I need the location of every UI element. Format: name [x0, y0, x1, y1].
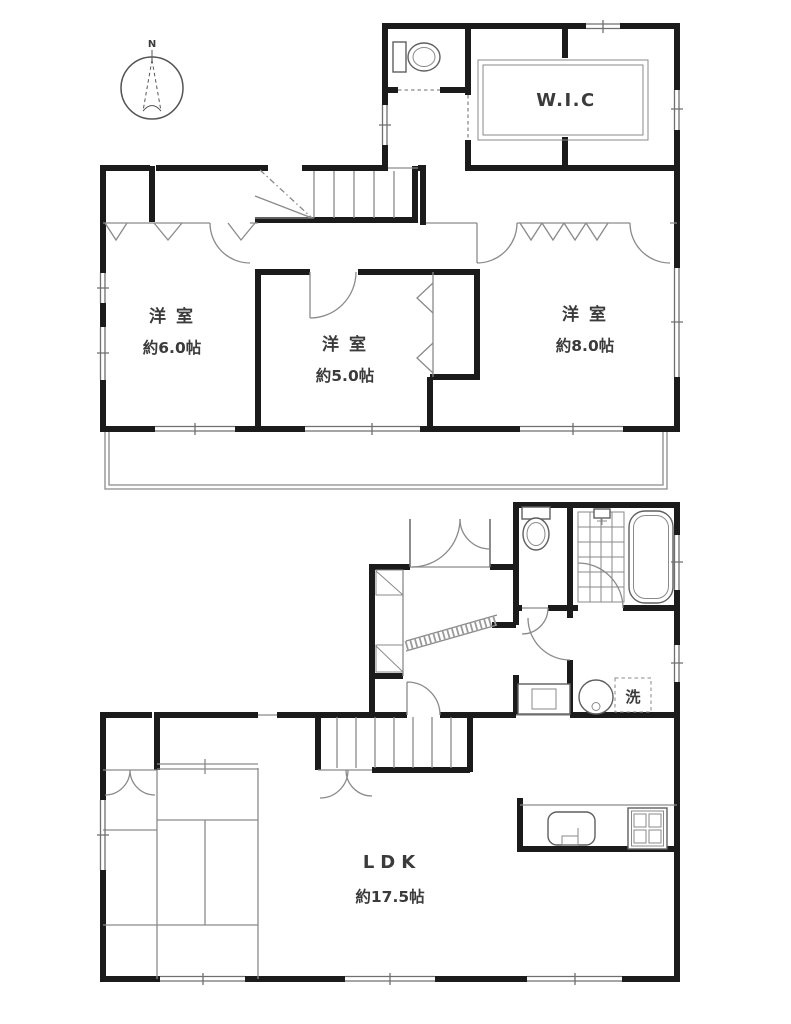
room-center-size: 約5.0帖 [316, 366, 375, 385]
room-west-name: 洋 室 [149, 306, 195, 327]
exterior-walls-1f [100, 505, 680, 982]
staircase-1f [320, 717, 451, 798]
entry-door-child-arc [460, 519, 490, 549]
toilet-2f-icon [393, 42, 440, 72]
window-right-washroom [671, 645, 683, 682]
window-top-wic [586, 20, 620, 33]
closet-folding-doors-west-2f [105, 223, 255, 240]
shoe-cabinet-icon [376, 570, 403, 676]
laundry-label: 洗 [625, 688, 640, 706]
genkan-step-hatch-band [406, 620, 497, 646]
window-left-lower [97, 327, 109, 380]
windows-2f [97, 20, 683, 435]
window-bottom-east [520, 423, 623, 435]
door-arc-room-center-2f [310, 272, 356, 318]
door-arc-room-east-right-2f [630, 223, 670, 263]
floor-2f-plan: W.I.C 洋 室 約6.0帖 洋 室 約5.0帖 洋 室 約8.0帖 [97, 20, 683, 489]
window-bottom-west [155, 423, 235, 435]
shower-faucet-spout [597, 518, 607, 525]
room-east-name: 洋 室 [562, 304, 608, 325]
ldk-size: 約17.5帖 [355, 887, 425, 906]
stair-treads-1f [337, 717, 451, 768]
shower-faucet-body [594, 509, 610, 518]
compass-north-label: N [148, 39, 156, 50]
tatami-room [103, 759, 258, 925]
washer-pan-icon [579, 680, 613, 714]
closet-folding-doors-east-2f [520, 223, 608, 240]
kitchen-sink-icon [548, 812, 595, 845]
balcony [105, 432, 667, 489]
window-left-upper [97, 273, 109, 303]
kitchen [520, 805, 677, 849]
window-right-room-east [671, 268, 683, 377]
north-arrow-base [143, 106, 161, 112]
north-arrow-right-edge [152, 60, 161, 111]
stair-treads-2f [255, 171, 394, 218]
genkan-step-hatch [406, 615, 497, 651]
window-bottom-ldk-west [345, 973, 435, 985]
door-arc-room-east-left-2f [477, 223, 517, 263]
ldk-name: LDK [363, 852, 421, 873]
door-arcs-2f [210, 90, 670, 318]
bathtub-outer [629, 511, 673, 603]
room-east-size: 約8.0帖 [556, 336, 615, 355]
entry-door-main-arc [412, 519, 460, 567]
tatami-closet-double-doors [103, 770, 157, 795]
gas-stove-icon [628, 808, 667, 849]
window-bottom-tatami [160, 973, 245, 985]
tatami-closet-sliding-doors [157, 759, 258, 774]
window-left-tatami [97, 800, 109, 870]
partition-lines-1f [157, 567, 570, 979]
compass: N [121, 39, 183, 119]
toilet-tank-2f [393, 42, 406, 72]
shoe-cabinet-lower-diag [376, 646, 403, 672]
shoe-cabinet-upper-diag [376, 571, 403, 595]
shower-faucet-icon [594, 509, 610, 525]
compass-circle-icon [121, 57, 183, 119]
window-bottom-center [305, 423, 420, 435]
understair-door-right-arc [346, 770, 372, 796]
washroom-door [528, 618, 570, 660]
stair-winder-line-2f [255, 196, 312, 218]
staircase-2f [255, 170, 394, 218]
entrance-porch [410, 519, 490, 567]
toilet-door-1f [522, 608, 548, 634]
exterior-walls-2f [100, 23, 680, 432]
understair-door-left-arc [320, 770, 348, 798]
closet-folding-doors-center-2f [417, 283, 433, 373]
sink-basin [548, 812, 595, 845]
bathtub-icon [629, 511, 673, 603]
genkan-ldk-door [407, 682, 440, 715]
washroom: 洗 [518, 678, 651, 714]
toilet-1f-icon [522, 507, 550, 550]
floor-plan-drawing: N [0, 0, 791, 1024]
window-bottom-ldk-east [527, 973, 622, 985]
bathroom [578, 509, 673, 603]
tatami-mat-grid [103, 820, 258, 925]
toilet-tank-1f [522, 507, 550, 519]
porch-walls [410, 519, 490, 567]
room-west-size: 約6.0帖 [143, 338, 202, 357]
floor-plan-page: N [0, 0, 791, 1024]
stair-center-line-2f [260, 170, 312, 218]
floor-1f-plan: 洗 [97, 505, 683, 985]
north-arrow-left-edge [143, 60, 152, 111]
room-center-name: 洋 室 [322, 334, 368, 355]
bath-tile-grid [578, 512, 624, 602]
wic-label: W.I.C [536, 90, 595, 111]
vanity-icon [518, 684, 570, 714]
door-arc-room-west-2f [210, 223, 250, 263]
window-hall-left [379, 105, 391, 145]
window-right-wic [671, 90, 683, 130]
